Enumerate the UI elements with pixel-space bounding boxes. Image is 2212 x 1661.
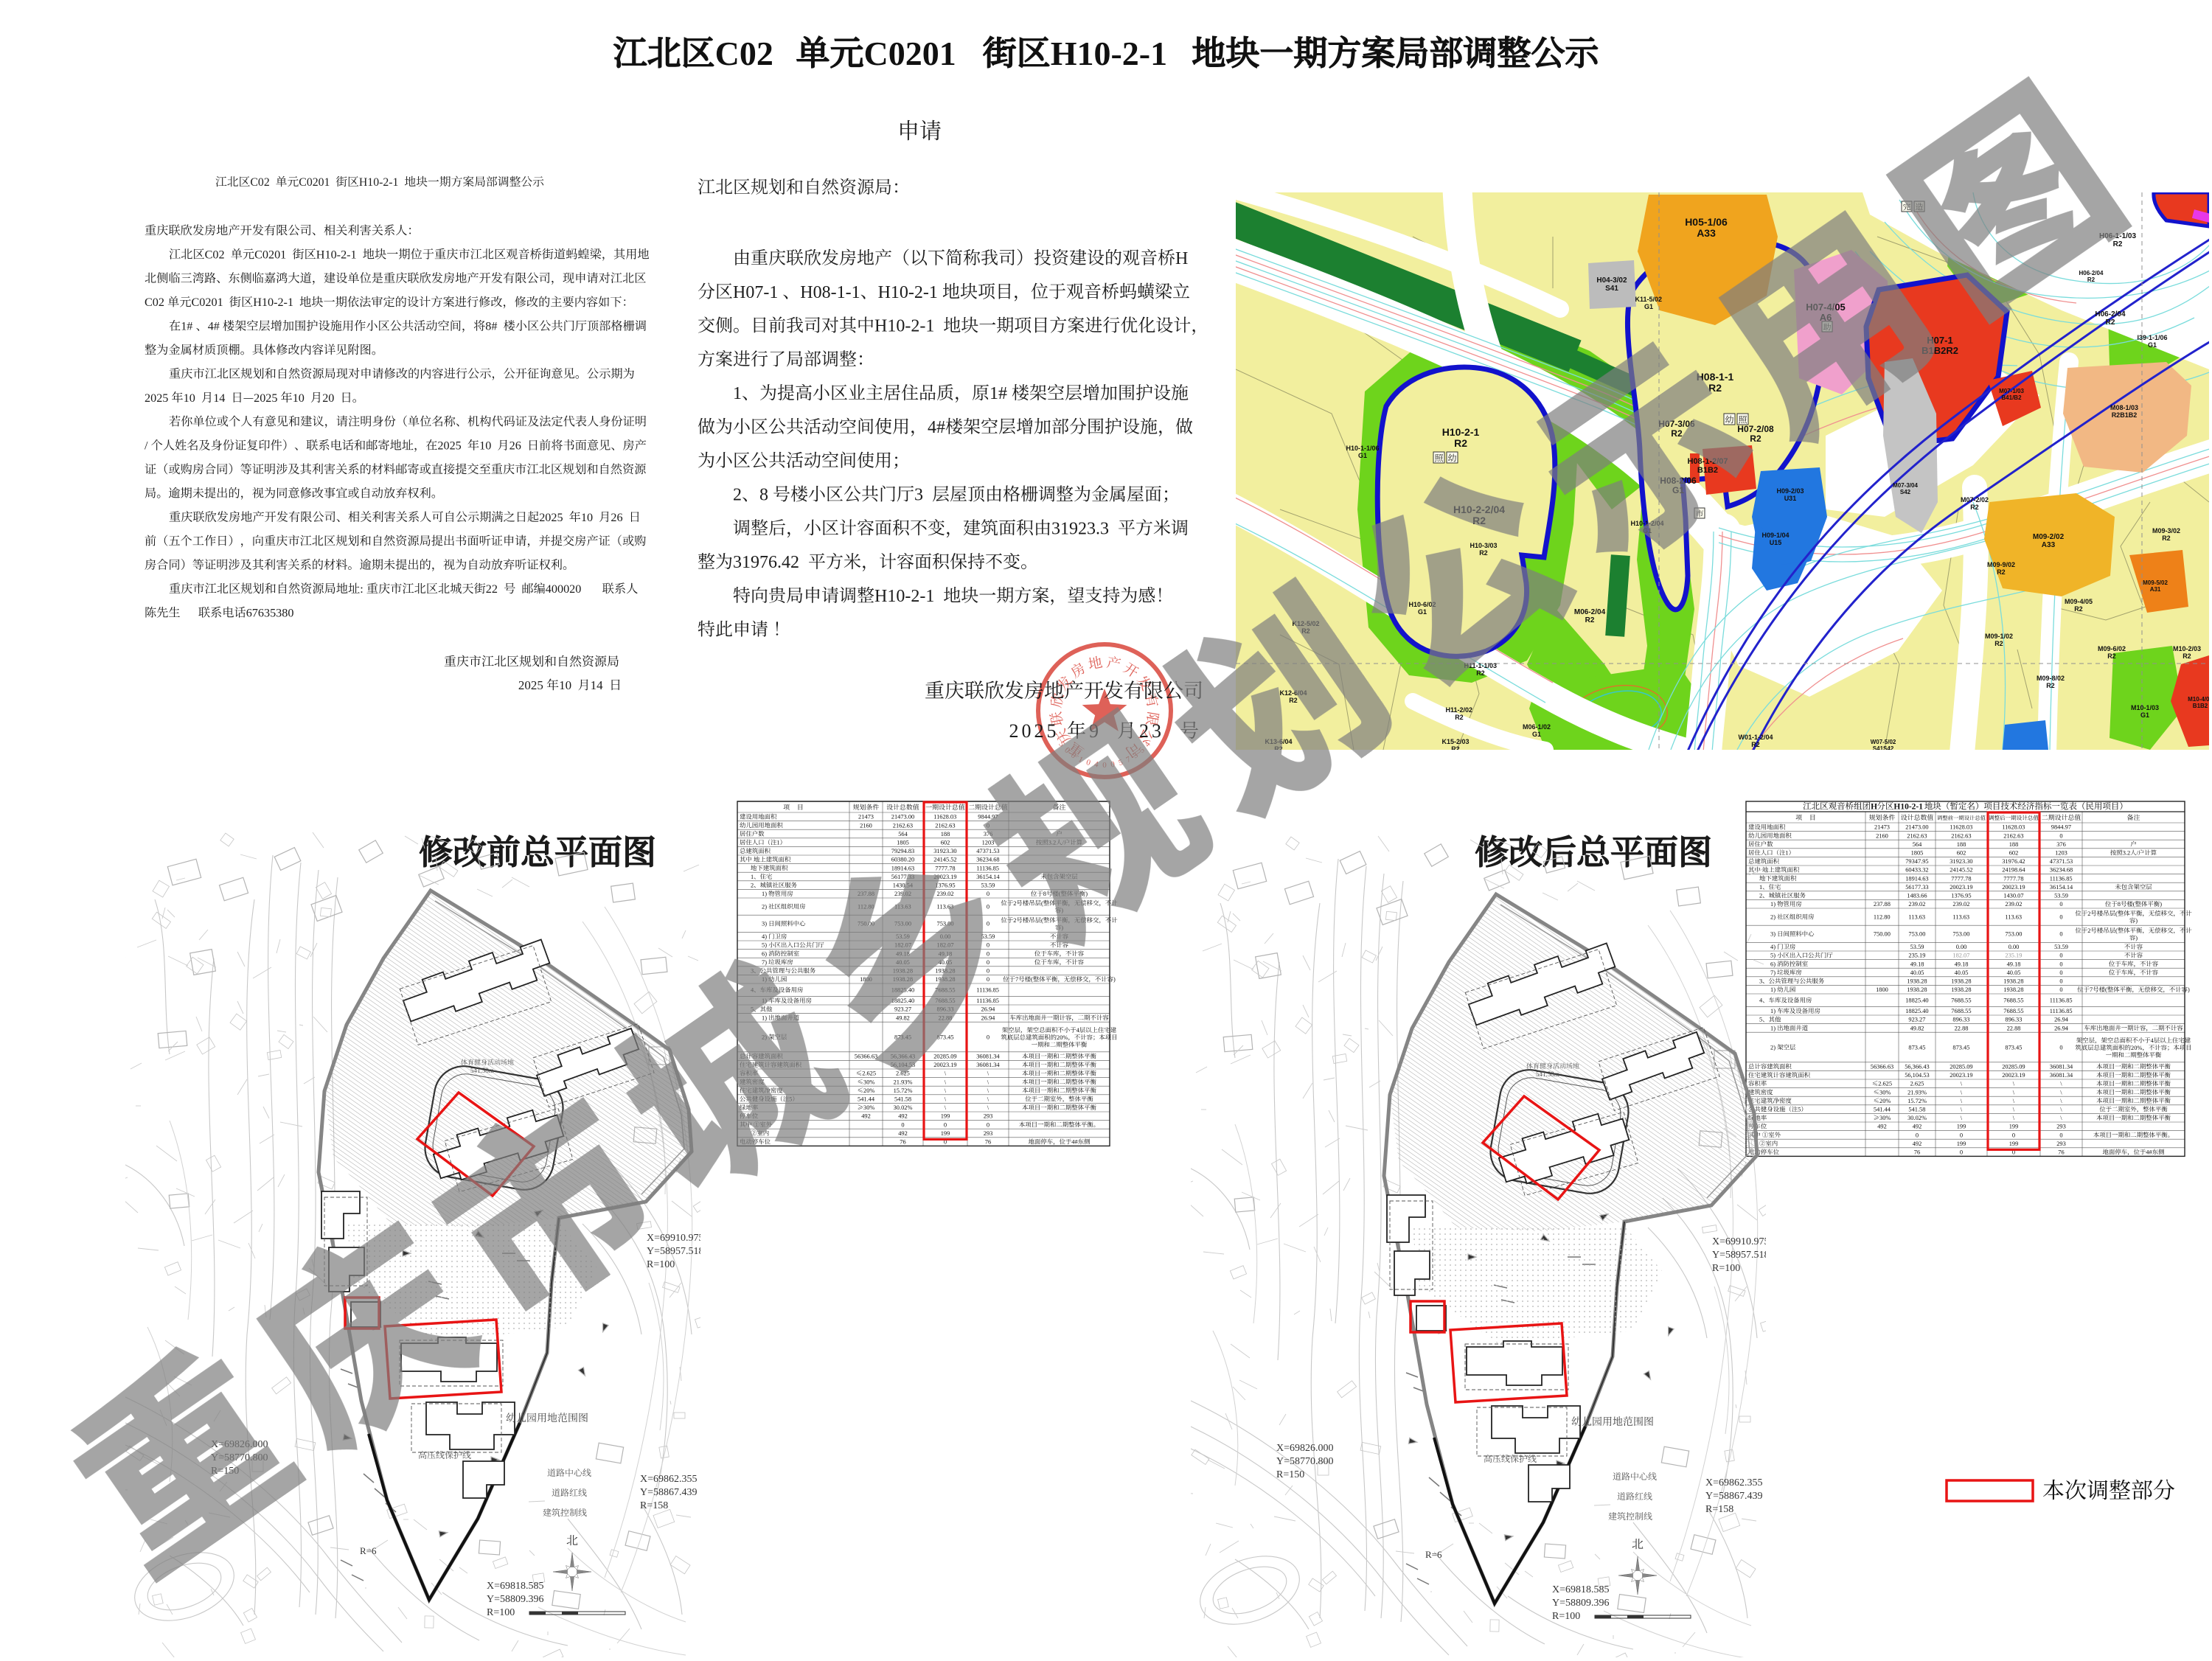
- svg-text:541.44: 541.44: [858, 1096, 875, 1103]
- svg-text:0: 0: [944, 1121, 947, 1128]
- svg-text:36081.34: 36081.34: [976, 1054, 1000, 1060]
- svg-text:20285.09: 20285.09: [2002, 1064, 2025, 1070]
- svg-text:0: 0: [987, 891, 990, 897]
- svg-text:0: 0: [2059, 1044, 2062, 1051]
- svg-text:30.02%: 30.02%: [1907, 1115, 1927, 1121]
- svg-text:0: 0: [987, 950, 990, 957]
- svg-text:22.88: 22.88: [1955, 1025, 1969, 1031]
- svg-text:): ): [1113, 976, 1116, 983]
- svg-text:R2: R2: [2106, 318, 2115, 327]
- svg-text:0: 0: [2059, 931, 2062, 938]
- svg-text:7777.78: 7777.78: [935, 865, 955, 871]
- svg-text:R2: R2: [2074, 605, 2083, 613]
- svg-text:15.72%: 15.72%: [1907, 1098, 1927, 1104]
- svg-text:A33: A33: [1697, 227, 1716, 239]
- svg-text:1#: 1#: [181, 320, 192, 333]
- svg-text:21.93%: 21.93%: [894, 1079, 913, 1085]
- svg-text:30%: 30%: [1879, 1089, 1891, 1096]
- svg-text:36081.34: 36081.34: [2050, 1072, 2073, 1079]
- svg-text:H10-2-1: H10-2-1: [1442, 426, 1480, 438]
- svg-text:H10-2-1: H10-2-1: [1893, 803, 1923, 812]
- svg-text:30%: 30%: [863, 1104, 874, 1111]
- svg-text:M06-2/04: M06-2/04: [1574, 608, 1606, 616]
- svg-text:R2: R2: [2162, 534, 2171, 542]
- svg-text:20023.19: 20023.19: [2002, 1072, 2025, 1079]
- svg-text:0: 0: [987, 1034, 990, 1040]
- svg-text:M09-6/02: M09-6/02: [2098, 645, 2126, 652]
- svg-text:M09-8/02: M09-8/02: [2037, 675, 2065, 682]
- svg-text:67635380: 67635380: [246, 606, 294, 619]
- svg-text:21473.00: 21473.00: [891, 814, 914, 821]
- svg-text:1938.28: 1938.28: [2003, 986, 2023, 993]
- svg-text:2162.63: 2162.63: [1907, 832, 1927, 839]
- svg-text:11628.03: 11628.03: [933, 814, 956, 821]
- svg-text:49.82: 49.82: [896, 1014, 910, 1021]
- svg-text:2160: 2160: [860, 822, 872, 829]
- svg-text:750.00: 750.00: [1874, 931, 1891, 938]
- svg-text:H05-1/06: H05-1/06: [1685, 216, 1728, 228]
- svg-text:H10-2-1: H10-2-1: [253, 296, 293, 309]
- svg-text:2: 2: [2087, 910, 2090, 917]
- svg-text:53.59: 53.59: [981, 933, 995, 940]
- svg-text:36081.34: 36081.34: [2050, 1064, 2073, 1070]
- svg-text:1: 1: [751, 874, 754, 880]
- svg-text:20: 20: [322, 391, 334, 405]
- svg-text:H10-2-1: H10-2-1: [359, 176, 399, 189]
- svg-text:G1: G1: [2140, 711, 2149, 719]
- svg-text:26.94: 26.94: [981, 1006, 996, 1013]
- svg-text:M09-1/02: M09-1/02: [1985, 633, 2013, 640]
- svg-text:0: 0: [2059, 969, 2062, 976]
- svg-text:7688.55: 7688.55: [1951, 997, 1971, 1004]
- svg-text:M10-4/03: M10-4/03: [2188, 696, 2212, 703]
- svg-text:7): 7): [1770, 969, 1775, 976]
- svg-text:R2: R2: [1454, 437, 1467, 449]
- svg-text:0: 0: [2059, 961, 2062, 967]
- svg-text:1805: 1805: [1911, 850, 1924, 857]
- svg-text:239.02: 239.02: [1952, 901, 1969, 908]
- svg-text:0: 0: [987, 921, 990, 927]
- svg-text:H10-1-1/06: H10-1-1/06: [1346, 445, 1380, 452]
- svg-text:492: 492: [861, 1113, 871, 1120]
- svg-text:0: 0: [987, 959, 990, 966]
- svg-text:376: 376: [2056, 841, 2066, 848]
- svg-text:26.94: 26.94: [2054, 1017, 2069, 1023]
- svg-text:M09-9/02: M09-9/02: [1987, 561, 2015, 568]
- svg-text:1): 1): [762, 1014, 767, 1021]
- svg-text:2025: 2025: [1009, 720, 1060, 742]
- svg-text:(: (: [1041, 900, 1043, 907]
- svg-text:11136.85: 11136.85: [976, 987, 999, 994]
- svg-text:H07-2/08: H07-2/08: [1737, 424, 1774, 434]
- svg-text:492: 492: [1913, 1141, 1922, 1147]
- svg-text::: :: [360, 582, 364, 596]
- svg-text:1483.66: 1483.66: [1907, 893, 1927, 899]
- svg-text:2: 2: [2087, 927, 2090, 934]
- svg-text:M06-1/02: M06-1/02: [1523, 723, 1551, 731]
- svg-text:1805: 1805: [897, 840, 909, 846]
- svg-text:6): 6): [1770, 961, 1775, 967]
- svg-text:24198.64: 24198.64: [2002, 867, 2025, 874]
- svg-text:31976.42: 31976.42: [2002, 858, 2025, 865]
- svg-text:0: 0: [987, 942, 990, 949]
- svg-text:199: 199: [2009, 1141, 2019, 1147]
- svg-text:49.18: 49.18: [1910, 961, 1924, 967]
- svg-text:2025: 2025: [518, 678, 543, 692]
- svg-text:113.63: 113.63: [1952, 914, 1969, 921]
- svg-text:492: 492: [898, 1130, 908, 1137]
- svg-text:199: 199: [2009, 1124, 2019, 1130]
- svg-text:239.02: 239.02: [1908, 901, 1925, 908]
- svg-text:H04-3/02: H04-3/02: [1596, 276, 1627, 285]
- svg-text:53.59: 53.59: [981, 882, 995, 889]
- svg-text:492: 492: [1913, 1124, 1922, 1130]
- svg-text:21473: 21473: [1874, 824, 1890, 831]
- svg-text:1): 1): [1770, 1025, 1775, 1031]
- svg-text:541.44: 541.44: [1874, 1107, 1891, 1113]
- svg-text:0: 0: [1960, 1149, 1963, 1156]
- svg-text:9844.97: 9844.97: [2051, 824, 2071, 831]
- svg-text:53.59: 53.59: [1910, 944, 1924, 950]
- svg-text:0: 0: [2059, 914, 2062, 921]
- svg-text:873.45: 873.45: [2005, 1044, 2022, 1051]
- svg-text:188: 188: [2009, 841, 2019, 848]
- svg-text:239.02: 239.02: [2005, 901, 2022, 908]
- svg-text:R2: R2: [1671, 428, 1683, 439]
- svg-text:H08-1-1: H08-1-1: [800, 283, 860, 302]
- svg-text:0: 0: [2012, 1132, 2015, 1138]
- svg-text:492: 492: [1877, 1124, 1887, 1130]
- svg-text:A33: A33: [2042, 541, 2056, 549]
- svg-text:M07-1/03: M07-1/03: [1999, 388, 2024, 394]
- svg-text:R2: R2: [1479, 549, 1488, 557]
- svg-text:H09-2/03: H09-2/03: [1777, 487, 1804, 495]
- svg-text:G1: G1: [2148, 341, 2157, 349]
- svg-text:79347.95: 79347.95: [1905, 858, 1928, 865]
- svg-text:564: 564: [898, 831, 908, 838]
- svg-text:873.45: 873.45: [1908, 1044, 1925, 1051]
- svg-text:873.45: 873.45: [1952, 1044, 1969, 1051]
- svg-text:S41: S41: [1605, 285, 1618, 293]
- svg-text:4): 4): [762, 933, 767, 940]
- svg-text:1203: 1203: [2055, 850, 2067, 857]
- svg-text:I39-1-1/06: I39-1-1/06: [2138, 334, 2168, 341]
- svg-text:10: 10: [184, 391, 195, 405]
- svg-text:60433.32: 60433.32: [1905, 867, 1928, 874]
- svg-text:30%: 30%: [863, 1079, 874, 1085]
- svg-text:18914.63: 18914.63: [1905, 875, 1928, 882]
- svg-text:26: 26: [611, 511, 622, 524]
- svg-text:26.94: 26.94: [2054, 1025, 2069, 1031]
- svg-text:0: 0: [987, 904, 990, 910]
- svg-text:49.18: 49.18: [2007, 961, 2021, 967]
- svg-text:2025: 2025: [254, 391, 277, 405]
- svg-text:0: 0: [2059, 1132, 2062, 1138]
- svg-text:11136.85: 11136.85: [2050, 997, 2073, 1004]
- svg-text:R2: R2: [1751, 741, 1760, 748]
- svg-text:753.00: 753.00: [1952, 931, 1969, 938]
- svg-text:76: 76: [985, 1139, 991, 1146]
- svg-text:0: 0: [987, 976, 990, 983]
- svg-text:11136.85: 11136.85: [976, 865, 999, 871]
- svg-text:237.88: 237.88: [1874, 901, 1891, 908]
- svg-text:1203: 1203: [982, 840, 995, 846]
- svg-text:47371.53: 47371.53: [976, 848, 999, 854]
- svg-text:20%: 20%: [1057, 1034, 1068, 1041]
- svg-text:1): 1): [1770, 1008, 1775, 1014]
- svg-text:M09-3/02: M09-3/02: [2152, 527, 2180, 534]
- svg-text:H10-2-1: H10-2-1: [874, 317, 934, 336]
- svg-text:1: 1: [1785, 850, 1788, 857]
- svg-text:753.00: 753.00: [2005, 931, 2022, 938]
- svg-text:36154.14: 36154.14: [2050, 884, 2073, 891]
- svg-text:M10-2/03: M10-2/03: [2173, 645, 2201, 652]
- svg-text:C02: C02: [145, 296, 164, 309]
- svg-text:2): 2): [1770, 914, 1775, 921]
- svg-text:182.07: 182.07: [1952, 953, 1969, 959]
- svg-text:11136.85: 11136.85: [2050, 1008, 2073, 1014]
- svg-text:): ): [2135, 935, 2138, 941]
- svg-text:/: /: [145, 439, 148, 453]
- svg-text:20023.19: 20023.19: [1950, 1072, 1972, 1079]
- svg-text:1430.07: 1430.07: [2003, 893, 2023, 899]
- svg-text:G1: G1: [1532, 731, 1541, 738]
- svg-text:10: 10: [581, 511, 593, 524]
- svg-text:20023.19: 20023.19: [933, 1062, 956, 1068]
- svg-text:4): 4): [1770, 944, 1775, 950]
- svg-text:31976.42: 31976.42: [733, 553, 799, 572]
- svg-text:B1B2: B1B2: [2193, 703, 2208, 709]
- svg-text:C0201: C0201: [192, 296, 223, 309]
- svg-text:22: 22: [486, 582, 498, 596]
- svg-text:5: 5: [1759, 1017, 1762, 1023]
- svg-text:): ): [1085, 891, 1088, 897]
- svg-text:293: 293: [984, 1130, 993, 1137]
- svg-text:49.82: 49.82: [1910, 1025, 1924, 1031]
- svg-text:(: (: [1031, 976, 1033, 983]
- svg-text:2025: 2025: [539, 511, 563, 524]
- svg-text:2): 2): [1770, 1044, 1775, 1051]
- svg-text:492: 492: [898, 1113, 908, 1120]
- svg-text:40.05: 40.05: [2007, 969, 2021, 976]
- svg-text:20285.09: 20285.09: [933, 1054, 956, 1060]
- svg-text:2160: 2160: [1876, 832, 1888, 839]
- svg-text:8: 8: [1043, 891, 1046, 897]
- svg-text:1800: 1800: [1876, 986, 1888, 993]
- svg-text:49.18: 49.18: [1955, 961, 1969, 967]
- svg-text:(: (: [2105, 986, 2107, 993]
- svg-text:11136.85: 11136.85: [2050, 875, 2073, 882]
- svg-text:1376.95: 1376.95: [1951, 893, 1971, 899]
- svg-text:20023.19: 20023.19: [2002, 884, 2025, 891]
- svg-text:7): 7): [762, 959, 767, 966]
- svg-text:R2: R2: [1997, 568, 2006, 576]
- svg-text:1938.28: 1938.28: [1951, 986, 1971, 993]
- svg-text:5): 5): [762, 942, 767, 949]
- svg-text:0: 0: [2059, 832, 2062, 839]
- svg-text:R2: R2: [1289, 697, 1298, 704]
- svg-text:36081.34: 36081.34: [976, 1062, 1000, 1068]
- svg-text:7: 7: [2090, 986, 2093, 993]
- svg-text:53.59: 53.59: [2054, 944, 2068, 950]
- svg-text:4#: 4#: [928, 418, 945, 437]
- svg-text:K11-5/02: K11-5/02: [1635, 296, 1663, 303]
- svg-text:A31: A31: [2150, 586, 2161, 593]
- svg-text:): ): [2188, 986, 2190, 993]
- svg-text:15.72%: 15.72%: [894, 1087, 913, 1094]
- svg-text:M10-1/03: M10-1/03: [2131, 704, 2159, 711]
- svg-text:10: 10: [559, 678, 571, 692]
- svg-text:20%: 20%: [863, 1087, 874, 1094]
- svg-text:R2: R2: [1750, 433, 1761, 444]
- svg-text:30%: 30%: [1879, 1115, 1891, 1121]
- svg-text:564: 564: [1913, 841, 1922, 848]
- svg-text:21.93%: 21.93%: [1907, 1089, 1927, 1096]
- svg-text:2: 2: [1013, 900, 1016, 907]
- svg-text:): ): [2135, 918, 2138, 924]
- svg-text:199: 199: [1957, 1124, 1966, 1130]
- svg-text:H07-1: H07-1: [733, 283, 778, 302]
- svg-text:2025: 2025: [145, 391, 168, 405]
- svg-text:235.19: 235.19: [1908, 953, 1925, 959]
- svg-text:11628.03: 11628.03: [2002, 824, 2025, 831]
- svg-text:M09-4/05: M09-4/05: [2065, 598, 2093, 605]
- svg-text:7688.55: 7688.55: [2003, 997, 2023, 1004]
- svg-text:M09-5/02: M09-5/02: [2143, 579, 2168, 586]
- svg-text:0: 0: [901, 1121, 904, 1128]
- svg-text:M09-2/02: M09-2/02: [2033, 533, 2065, 541]
- svg-text:C0201: C0201: [299, 176, 330, 189]
- svg-text:56366.63: 56366.63: [1871, 1064, 1893, 1070]
- svg-text:1#: 1#: [990, 384, 1007, 403]
- svg-text:R2: R2: [1994, 640, 2003, 647]
- svg-text:H10-2-1: H10-2-1: [316, 248, 357, 261]
- svg-text:0: 0: [1960, 1132, 1963, 1138]
- svg-text:79294.83: 79294.83: [891, 848, 914, 854]
- svg-text:76: 76: [2058, 1149, 2064, 1156]
- svg-text:7688.55: 7688.55: [2003, 1008, 2023, 1014]
- svg-text:U15: U15: [1770, 539, 1782, 546]
- svg-text:(: (: [1041, 917, 1043, 924]
- svg-text:30.02%: 30.02%: [894, 1104, 913, 1111]
- svg-text:24145.52: 24145.52: [1950, 867, 1972, 874]
- svg-text:(: (: [2115, 927, 2118, 934]
- svg-text:(: (: [2115, 910, 2118, 917]
- svg-text:(: (: [2133, 901, 2135, 908]
- svg-text:0.00: 0.00: [1956, 944, 1967, 950]
- svg-text:40.05: 40.05: [1910, 969, 1924, 976]
- svg-text:11628.03: 11628.03: [1950, 824, 1972, 831]
- svg-text:896.33: 896.33: [1952, 1017, 1969, 1023]
- svg-text:239.02: 239.02: [937, 891, 954, 897]
- svg-text:60380.20: 60380.20: [891, 857, 914, 863]
- svg-text:20%: 20%: [1879, 1098, 1891, 1104]
- svg-text:21473.00: 21473.00: [1905, 824, 1928, 831]
- svg-text:31923.30: 31923.30: [1950, 858, 1972, 865]
- svg-text:293: 293: [2056, 1124, 2066, 1130]
- svg-text:R2: R2: [1585, 616, 1595, 624]
- svg-text:56177.33: 56177.33: [1905, 884, 1928, 891]
- svg-text:1938.28: 1938.28: [1907, 986, 1927, 993]
- svg-text:K15-2/03: K15-2/03: [1442, 738, 1470, 745]
- svg-text:293: 293: [2056, 1141, 2066, 1147]
- svg-text:3: 3: [914, 486, 923, 505]
- svg-text:14: 14: [213, 391, 225, 405]
- svg-text:1: 1: [1759, 884, 1762, 891]
- svg-text:602: 602: [941, 840, 950, 846]
- svg-text:47371.53: 47371.53: [2050, 858, 2073, 865]
- svg-text:C0201: C0201: [254, 248, 286, 261]
- svg-text:2.625: 2.625: [1910, 1081, 1924, 1087]
- svg-text:896.33: 896.33: [2005, 1017, 2022, 1023]
- svg-text:2: 2: [1759, 893, 1762, 899]
- svg-text:0.00: 0.00: [2008, 944, 2020, 950]
- svg-text:H10-2-1: H10-2-1: [878, 283, 938, 302]
- svg-text:1938.28: 1938.28: [2003, 978, 2023, 985]
- svg-text:2162.63: 2162.63: [1951, 832, 1971, 839]
- svg-text:3: 3: [1759, 978, 1762, 985]
- svg-text:G1: G1: [1358, 452, 1367, 459]
- svg-text:R2: R2: [2183, 652, 2191, 660]
- svg-text:H06-2/04: H06-2/04: [2079, 270, 2104, 276]
- svg-text:0: 0: [2059, 953, 2062, 959]
- svg-text:56,104.53: 56,104.53: [1905, 1072, 1930, 1079]
- svg-text:541.58: 541.58: [894, 1096, 911, 1103]
- svg-text:11136.85: 11136.85: [976, 997, 999, 1004]
- svg-text:113.63: 113.63: [2005, 914, 2022, 921]
- svg-text:W01-1-2/04: W01-1-2/04: [1739, 734, 1773, 741]
- svg-text:4#: 4#: [2146, 1149, 2152, 1156]
- svg-text:56,366.43: 56,366.43: [1905, 1064, 1930, 1070]
- svg-text:H10-2-1: H10-2-1: [1051, 35, 1167, 72]
- svg-text:76: 76: [900, 1139, 905, 1146]
- svg-text:4#: 4#: [1071, 1139, 1078, 1146]
- svg-text:14: 14: [591, 678, 604, 692]
- svg-text:C02: C02: [250, 176, 269, 189]
- svg-text:H10-2-1: H10-2-1: [874, 587, 934, 606]
- svg-text:7688.55: 7688.55: [1951, 1008, 1971, 1014]
- svg-text:H11-2/02: H11-2/02: [1446, 706, 1473, 714]
- svg-text:10: 10: [479, 439, 491, 453]
- svg-text:7: 7: [1015, 976, 1018, 983]
- svg-text:199: 199: [941, 1130, 950, 1137]
- svg-text:1: 1: [733, 384, 742, 403]
- svg-text:1: 1: [776, 840, 779, 846]
- svg-text:22.88: 22.88: [2007, 1025, 2021, 1031]
- svg-text:R2: R2: [2087, 276, 2096, 283]
- svg-text:2025: 2025: [437, 439, 461, 453]
- svg-text:G1: G1: [1644, 303, 1653, 310]
- svg-text:188: 188: [941, 831, 950, 838]
- svg-text:293: 293: [984, 1113, 993, 1120]
- svg-text:23: 23: [1139, 720, 1164, 742]
- svg-text:26.94: 26.94: [981, 1014, 996, 1021]
- svg-text:602: 602: [2009, 850, 2019, 857]
- svg-text:3): 3): [762, 921, 767, 927]
- svg-text:26: 26: [509, 439, 521, 453]
- svg-text:20285.09: 20285.09: [1950, 1064, 1972, 1070]
- svg-text:R2: R2: [2046, 682, 2055, 689]
- svg-text:H06-2/04: H06-2/04: [2095, 310, 2126, 318]
- svg-text:31923.30: 31923.30: [933, 848, 956, 854]
- svg-text:76: 76: [1914, 1149, 1920, 1156]
- svg-text:1938.28: 1938.28: [1951, 978, 1971, 985]
- svg-text:3.2: 3.2: [2123, 850, 2130, 857]
- svg-text:2.625: 2.625: [1878, 1081, 1892, 1087]
- svg-text:753.00: 753.00: [1908, 931, 1925, 938]
- svg-text:199: 199: [1957, 1141, 1966, 1147]
- svg-text:1): 1): [762, 891, 767, 897]
